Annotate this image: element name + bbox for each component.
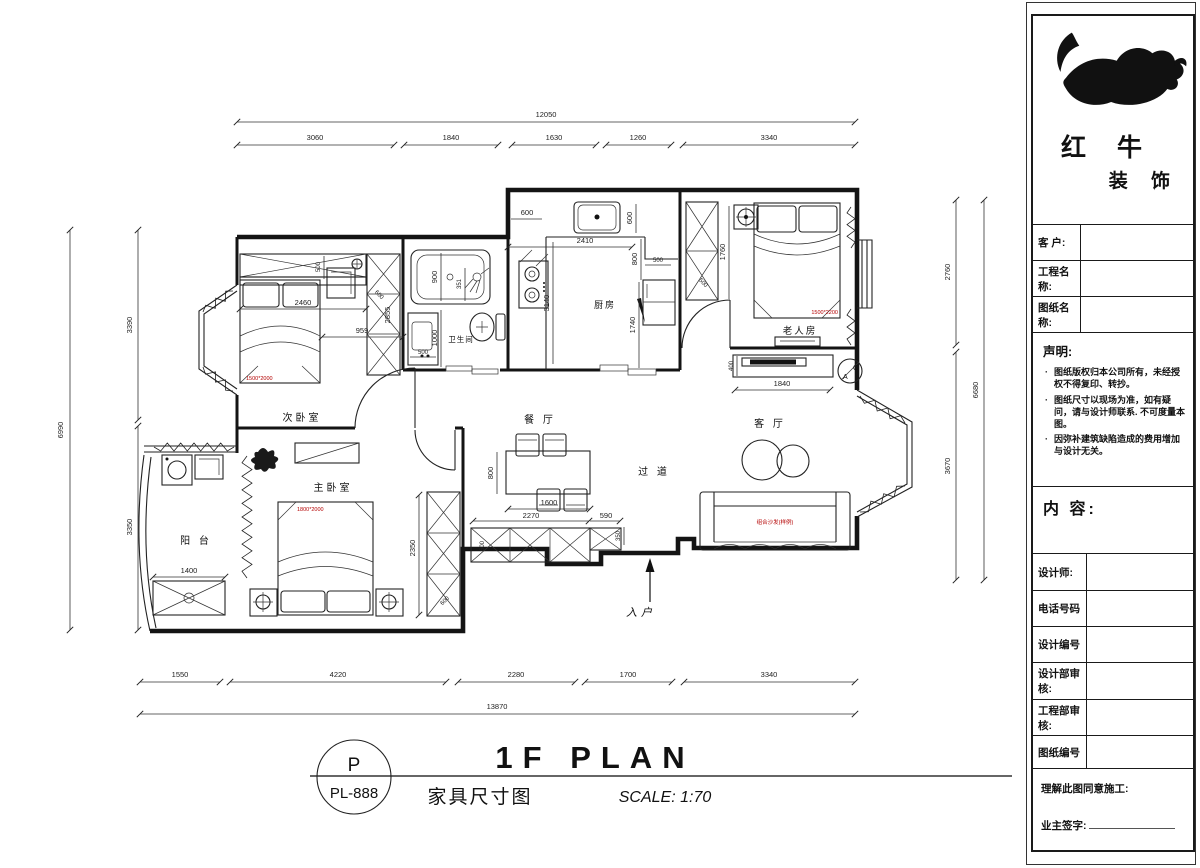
statement-box: 声明: 图纸版权归本公司所有，未经授权不得复印、转抄。 图纸尺寸以现场为准，如有… — [1033, 332, 1193, 486]
chair — [564, 489, 587, 511]
dim-top-2: 1840 — [443, 133, 460, 142]
approval-line: 理解此图同意施工: — [1041, 781, 1187, 796]
kitchen-sink — [574, 202, 620, 233]
dim: 350 — [616, 530, 622, 541]
field-label: 设计师: — [1033, 554, 1087, 590]
dim: 600 — [480, 540, 486, 551]
dim: 2350 — [408, 540, 417, 557]
dim: 500 — [316, 261, 322, 272]
nightstand — [250, 589, 277, 616]
ac-letter-c: C — [853, 365, 858, 372]
room-label-elder: 老人房 — [783, 325, 818, 337]
room-master-bedroom: 1800*2000 2350 600 主卧室 — [250, 443, 460, 618]
bathtub — [411, 250, 490, 304]
field-engineering-dept-review: 工程部审核: — [1033, 699, 1193, 735]
curtain-right-bay — [860, 486, 905, 512]
field-designer: 设计师: — [1033, 553, 1193, 590]
balcony-cabinet — [153, 581, 225, 615]
room-secondary-bedroom: 1500*2000 500 2460 959 2855 600 次卧室 — [237, 254, 406, 424]
content-box: 内 容: — [1033, 486, 1193, 553]
room-elder: 1500*2200 1760 500 老人房 — [686, 202, 840, 346]
dim-top-1: 3060 — [307, 133, 324, 142]
dim-left-2: 3350 — [125, 519, 134, 536]
dim-bottom-total: 13870 — [487, 702, 508, 711]
dim: 959 — [356, 326, 369, 335]
approval-box: 理解此图同意施工: 业主签字: — [1033, 768, 1193, 850]
dim: 1000 — [430, 330, 439, 347]
curtain-right-bay — [860, 396, 905, 423]
signature-line — [1089, 818, 1175, 829]
bed-size-label: 1500*2200 — [811, 310, 838, 316]
dim-bottom-1: 1550 — [172, 670, 189, 679]
dim: 1840 — [774, 379, 791, 388]
shower-icon — [465, 268, 489, 293]
dim-bottom-2: 4220 — [330, 670, 347, 679]
dim: 800 — [630, 253, 639, 266]
bench — [775, 337, 820, 346]
dim-bottom-4: 1700 — [620, 670, 637, 679]
field-label: 工程部审核: — [1033, 700, 1087, 735]
dim-right-1: 2760 — [943, 264, 952, 281]
curtain-left-bay — [203, 367, 233, 391]
plan-stamp — [317, 740, 391, 814]
field-project-name: 工程名称: — [1033, 260, 1193, 296]
plant-icon — [251, 448, 278, 472]
statement-item: 图纸尺寸以现场为准，如有疑问，请与设计师联系. 不可度量本图。 — [1054, 395, 1187, 431]
room-living: 400 1840 C A 组合沙发(样例) 客 厅 过 道 — [638, 355, 862, 550]
walls — [139, 190, 857, 631]
statement-title: 声明: — [1043, 341, 1187, 360]
statement-item: 图纸版权归本公司所有，未经授权不得复印、转抄。 — [1054, 367, 1187, 391]
dim: 600 — [521, 208, 534, 217]
field-drawing-number: 图纸编号 — [1033, 735, 1193, 768]
bay-window-left — [199, 285, 237, 395]
dim: 1400 — [181, 566, 198, 575]
room-label-entry: 入户 — [626, 606, 656, 619]
dim: 3140 — [542, 295, 551, 312]
outer-dimensions: 12050 3060 1840 1630 1260 3340 1550 4220… — [56, 110, 987, 717]
field-value — [1087, 736, 1193, 768]
bed-secondary: 1500*2000 — [240, 280, 320, 383]
bed-size-label: 1800*2000 — [297, 507, 324, 513]
dim-right-2: 3670 — [943, 458, 952, 475]
room-label-corridor: 过 道 — [638, 465, 670, 478]
door-bath-slider — [446, 366, 472, 371]
field-value — [1087, 627, 1193, 662]
nightstand — [376, 589, 403, 616]
field-label: 设计部审核: — [1033, 663, 1087, 699]
dim: 1760 — [718, 244, 727, 261]
field-label: 图纸名称: — [1033, 297, 1081, 332]
room-label-secondary: 次卧室 — [283, 411, 322, 424]
field-label: 工程名称: — [1033, 261, 1081, 296]
field-phone: 电话号码 — [1033, 590, 1193, 626]
dim-top-5: 3340 — [761, 133, 778, 142]
room-dining: 800 1600 2270 590 600 350 餐 厅 — [470, 413, 624, 562]
toilet — [470, 313, 505, 341]
plan-title: 1F PLAN — [495, 740, 694, 775]
field-label: 客 户: — [1033, 225, 1081, 260]
signature-label: 业主签字: — [1041, 820, 1087, 832]
field-value — [1087, 663, 1193, 699]
desk — [327, 259, 362, 298]
fridge — [643, 280, 675, 325]
room-label-balcony: 阳 台 — [180, 534, 212, 547]
dim: 900 — [430, 271, 439, 284]
field-label: 设计编号 — [1033, 627, 1087, 662]
dim: 600 — [440, 595, 452, 607]
dim-top-3: 1630 — [546, 133, 563, 142]
dim: 600 — [373, 290, 385, 302]
dim: 1600 — [541, 498, 558, 507]
dim-left-1: 3390 — [125, 317, 134, 334]
bed-master: 1800*2000 — [278, 502, 373, 615]
field-label: 电话号码 — [1033, 591, 1087, 626]
chair — [516, 434, 539, 456]
windows-and-bays — [154, 207, 912, 578]
field-client: 客 户: — [1033, 224, 1193, 260]
curtain-balcony-top — [154, 443, 234, 451]
floor-plan: 12050 3060 1840 1630 1260 3340 1550 4220… — [0, 0, 1030, 868]
content-title: 内 容: — [1043, 501, 1097, 518]
dim: 400 — [729, 360, 735, 371]
room-label-dining: 餐 厅 — [524, 413, 556, 426]
field-value — [1087, 700, 1193, 735]
field-drawing-name: 图纸名称: — [1033, 296, 1193, 332]
dim: 2270 — [523, 511, 540, 520]
field-value — [1087, 554, 1193, 590]
room-balcony: 1400 阳 台 — [150, 455, 228, 615]
room-label-bath: 卫生间 — [448, 334, 474, 344]
title-strip: 红 牛 装 饰 客 户: 工程名称: 图纸名称: 声明: 图纸版权归本公司所有，… — [1031, 14, 1195, 852]
plan-scale: SCALE: 1:70 — [619, 789, 712, 806]
bed-elder: 1500*2200 — [754, 203, 840, 318]
dim: 2460 — [295, 298, 312, 307]
door-master-bedroom — [415, 430, 455, 470]
dresser — [295, 443, 359, 463]
field-label: 图纸编号 — [1033, 736, 1087, 768]
door-secondary-bedroom — [355, 368, 415, 428]
dim: 500 — [418, 350, 429, 356]
room-kitchen: 600 600 2410 800 500 3140 1740 厨房 — [505, 202, 678, 370]
bed-size-label: 1500*2000 — [246, 376, 273, 382]
door-elder-room — [682, 300, 730, 348]
tv-cabinet — [733, 355, 833, 377]
plan-subtitle: 家具尺寸图 — [427, 786, 532, 808]
dim: 500 — [697, 278, 709, 290]
dim: 2855 — [383, 307, 392, 324]
dim-top-4: 1260 — [630, 133, 647, 142]
owner-signature: 业主签字: — [1041, 818, 1187, 833]
field-value — [1081, 225, 1193, 260]
field-design-number: 设计编号 — [1033, 626, 1193, 662]
dim: 351 — [457, 278, 463, 289]
room-label-master: 主卧室 — [314, 481, 353, 494]
drawing-sheet: 12050 3060 1840 1630 1260 3340 1550 4220… — [0, 0, 1200, 868]
brand-name-bottom: 装 饰 — [1109, 166, 1193, 193]
curtain-elder-window — [847, 309, 855, 345]
arrow-head-icon — [646, 558, 655, 572]
dining-table — [506, 451, 590, 494]
dim-right-total: 6680 — [971, 382, 980, 399]
curtain-elder-window — [847, 207, 855, 248]
ac-letter-a: A — [843, 374, 848, 381]
curtain-left-bay — [203, 291, 233, 312]
room-label-kitchen: 厨房 — [594, 299, 616, 310]
field-design-dept-review: 设计部审核: — [1033, 662, 1193, 699]
dim: 600 — [625, 212, 634, 225]
dim-bottom-5: 3340 — [761, 670, 778, 679]
stamp-letter: P — [348, 755, 361, 776]
dim-bottom-3: 2280 — [508, 670, 525, 679]
dim: 500 — [653, 258, 664, 264]
dim: 800 — [486, 467, 495, 480]
sofa-label: 组合沙发(样例) — [757, 518, 794, 526]
coffee-tables — [742, 440, 809, 480]
room-label-living: 客 厅 — [754, 417, 786, 430]
dim: 2410 — [577, 236, 594, 245]
curtain-balcony — [242, 456, 252, 578]
field-value — [1087, 591, 1193, 626]
title-block: P PL-888 1F PLAN 家具尺寸图 SCALE: 1:70 — [310, 740, 1012, 814]
wardrobe-master — [427, 492, 460, 616]
company-logo: 红 牛 装 饰 — [1033, 16, 1193, 224]
stamp-code: PL-888 — [330, 785, 378, 802]
washing-machine — [162, 455, 192, 485]
door-kitchen-slider — [628, 369, 656, 375]
field-value — [1081, 297, 1193, 332]
dim: 1740 — [628, 317, 637, 334]
door-kitchen-slider — [600, 365, 628, 371]
door-bath-slider — [472, 369, 498, 374]
chair — [543, 434, 566, 456]
entry-arrow: 入户 — [626, 558, 656, 619]
statement-item: 因弥补建筑缺陷造成的费用增加与设计无关。 — [1054, 434, 1187, 458]
field-value — [1081, 261, 1193, 296]
bull-logo-icon — [1038, 16, 1188, 126]
dim: 590 — [600, 511, 613, 520]
brand-name-top: 红 牛 — [1043, 128, 1154, 164]
dim-top-total: 12050 — [536, 110, 557, 119]
dim-left-total: 6990 — [56, 422, 65, 439]
room-bathroom: 900 351 1000 500 卫生间 — [408, 250, 505, 367]
sofa: 组合沙发(样例) — [700, 492, 850, 550]
